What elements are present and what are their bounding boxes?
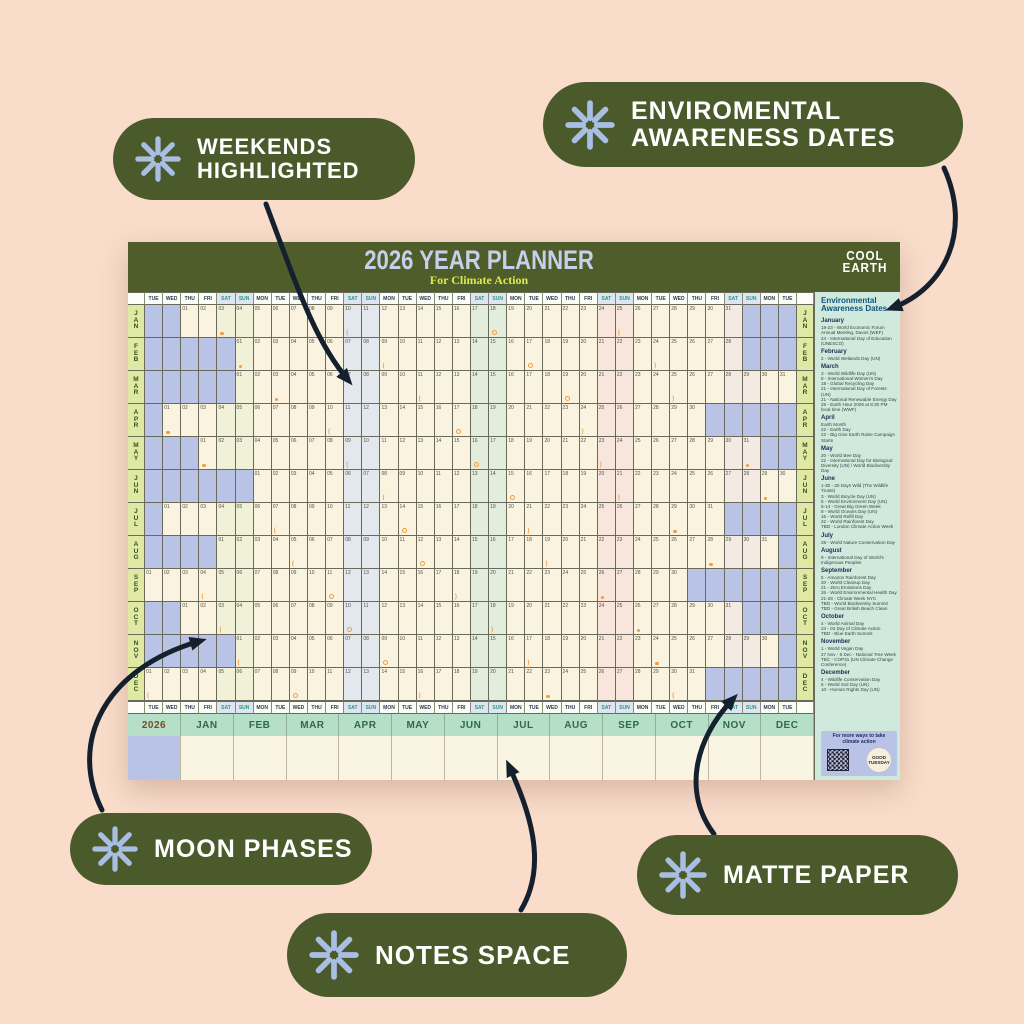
date-number: 21 [544, 603, 550, 609]
day-header: SUN [236, 701, 254, 714]
date-number: 03 [218, 306, 224, 312]
day-cell: 01( [236, 635, 254, 668]
day-cell: 19 [507, 305, 525, 338]
day-cell [725, 569, 743, 602]
day-cell: 08 [326, 437, 344, 470]
notes-cell [128, 736, 181, 780]
callout-moon-phases: MOON PHASES [70, 813, 372, 885]
sidebar-month-heading: March [821, 364, 897, 370]
day-cell: 05 [308, 371, 326, 404]
day-header: TUE [399, 292, 417, 305]
top-day-header-row: TUEWEDTHUFRISATSUNMONTUEWEDTHUFRISATSUNM… [128, 292, 814, 305]
date-number: 13 [454, 372, 460, 378]
day-cell [706, 668, 724, 701]
callout-text: MATTE PAPER [723, 862, 909, 889]
date-number: 04 [218, 405, 224, 411]
month-label-left: D E C [128, 668, 145, 701]
day-cell: 21 [507, 569, 525, 602]
moon-phase-full-icon [546, 695, 550, 699]
day-cell: 24 [598, 305, 616, 338]
header-corner [797, 292, 814, 305]
moon-phase-full-icon [220, 332, 224, 336]
day-header: SAT [471, 292, 489, 305]
day-cell: 24) [580, 404, 598, 437]
day-header: FRI [199, 701, 217, 714]
day-cell: 04 [290, 338, 308, 371]
sidebar-month-heading: July [821, 533, 897, 539]
day-cell [181, 437, 199, 470]
date-number: 21 [508, 669, 514, 675]
day-cell: 22 [525, 569, 543, 602]
day-cell: 02 [254, 371, 272, 404]
day-cell: 10( [344, 305, 362, 338]
day-cell: 22 [616, 338, 634, 371]
day-cell: 24 [580, 503, 598, 536]
date-number: 06 [327, 339, 333, 345]
day-cell: 02 [163, 668, 181, 701]
date-number: 25 [599, 405, 605, 411]
date-number: 07 [345, 339, 351, 345]
date-number: 25 [635, 438, 641, 444]
notes-cell [498, 736, 551, 780]
date-number: 12 [400, 438, 406, 444]
day-cell: 15 [471, 536, 489, 569]
day-cell [743, 305, 761, 338]
moon-phase-full-icon [637, 629, 641, 633]
date-number: 30 [689, 504, 695, 510]
date-number: 02 [164, 570, 170, 576]
day-cell: 07 [254, 668, 272, 701]
date-number: 24 [599, 603, 605, 609]
date-number: 04 [200, 570, 206, 576]
day-header: SAT [344, 292, 362, 305]
day-cell: 28 [634, 569, 652, 602]
sidebar-footer-text: For more ways to take climate action [824, 734, 894, 745]
day-cell: 25 [634, 437, 652, 470]
day-cell: 03( [217, 602, 235, 635]
day-cell: 31 [779, 371, 797, 404]
month-row-nov: N O V01(02030405060708091011121314151617… [128, 635, 814, 668]
date-number: 03 [237, 438, 243, 444]
day-cell: 25) [616, 305, 634, 338]
date-number: 18 [544, 636, 550, 642]
day-cell: 08 [290, 404, 308, 437]
date-number: 05 [309, 372, 315, 378]
day-cell: 08 [362, 371, 380, 404]
day-cell: 07 [290, 602, 308, 635]
day-cell: 30 [670, 569, 688, 602]
day-header: SUN [743, 292, 761, 305]
notes-cell [656, 736, 709, 780]
date-number: 28 [707, 537, 713, 543]
date-number: 07 [345, 372, 351, 378]
date-number: 17 [526, 636, 532, 642]
callout-text: MOON PHASES [154, 836, 353, 863]
day-cell: 14 [471, 635, 489, 668]
footer-month-label: OCT [656, 714, 709, 736]
date-number: 15 [418, 405, 424, 411]
asterisk-icon [659, 851, 707, 899]
day-header: THU [435, 701, 453, 714]
day-cell: 29 [743, 371, 761, 404]
date-number: 09 [327, 306, 333, 312]
date-number: 13 [454, 339, 460, 345]
date-number: 13 [381, 405, 387, 411]
day-cell: 31 [706, 503, 724, 536]
date-number: 27 [617, 570, 623, 576]
day-cell: 19 [489, 503, 507, 536]
day-cell: 16 [453, 305, 471, 338]
day-cell: 03 [181, 668, 199, 701]
day-header: FRI [706, 701, 724, 714]
day-cell: 28 [634, 668, 652, 701]
day-cell: 22 [562, 602, 580, 635]
day-cell: 12 [417, 536, 435, 569]
day-cell: 08 [362, 338, 380, 371]
day-header: SUN [743, 701, 761, 714]
date-number: 15 [472, 537, 478, 543]
date-number: 16 [418, 570, 424, 576]
day-cell: 16) [417, 668, 435, 701]
date-number: 11 [345, 504, 350, 510]
asterisk-icon [135, 136, 181, 182]
date-number: 01 [237, 339, 243, 345]
day-cell: 28 [670, 602, 688, 635]
date-number: 14 [418, 603, 424, 609]
day-cell [779, 437, 797, 470]
date-number: 03 [273, 339, 279, 345]
date-number: 04 [291, 636, 297, 642]
date-number: 20 [508, 405, 514, 411]
day-cell: 19) [543, 536, 561, 569]
date-number: 23 [635, 372, 641, 378]
day-cell: 02 [254, 635, 272, 668]
notes-cell [339, 736, 392, 780]
date-number: 20 [490, 669, 496, 675]
day-cell [163, 602, 181, 635]
date-number: 26 [635, 603, 641, 609]
date-number: 27 [707, 372, 713, 378]
day-cell: 20 [507, 404, 525, 437]
date-number: 10 [400, 339, 406, 345]
day-cell: 04 [217, 404, 235, 437]
month-label-left: O C T [128, 602, 145, 635]
day-cell: 18 [543, 635, 561, 668]
date-number: 25 [617, 603, 623, 609]
date-number: 15 [436, 603, 442, 609]
date-number: 26 [617, 504, 623, 510]
day-cell: 05 [217, 569, 235, 602]
date-number: 03 [291, 471, 297, 477]
month-label-right: J U N [797, 470, 814, 503]
day-cell: 20 [562, 536, 580, 569]
day-cell: 04( [199, 569, 217, 602]
date-number: 18 [472, 405, 478, 411]
date-number: 09 [381, 339, 387, 345]
date-number: 13 [472, 471, 478, 477]
day-header: WED [290, 292, 308, 305]
day-cell [725, 668, 743, 701]
day-cell: 21) [525, 503, 543, 536]
day-cell: 24 [562, 569, 580, 602]
date-number: 11 [327, 570, 332, 576]
date-number: 31 [726, 306, 732, 312]
day-cell: 31 [688, 668, 706, 701]
day-cell: 28 [652, 404, 670, 437]
day-cell: 14 [380, 668, 398, 701]
footer-month-label: MAY [392, 714, 445, 736]
moon-phase-new-icon [420, 561, 425, 566]
moon-phase-new-icon [383, 660, 388, 665]
asterisk-icon [309, 930, 359, 980]
day-cell: 30 [688, 503, 706, 536]
day-cell: 17 [453, 404, 471, 437]
day-cell [199, 470, 217, 503]
arrow-notes-space [509, 766, 535, 910]
day-cell: 17 [525, 338, 543, 371]
day-cell: 18 [543, 338, 561, 371]
sidebar-awareness-entry: 1-30 - 30 Days Wild (The Wildlife Trusts… [821, 483, 897, 493]
date-number: 06 [309, 537, 315, 543]
date-number: 05 [327, 471, 333, 477]
date-number: 11 [327, 669, 332, 675]
date-number: 20 [544, 438, 550, 444]
date-number: 03 [218, 603, 224, 609]
day-cell: 16 [525, 470, 543, 503]
day-cell: 14 [399, 503, 417, 536]
moon-phase-full-icon [764, 497, 768, 501]
day-header: SUN [489, 292, 507, 305]
day-header: SAT [217, 292, 235, 305]
date-number: 22 [544, 405, 550, 411]
day-cell: 03 [272, 338, 290, 371]
day-cell: 14 [417, 305, 435, 338]
day-cell: 12 [380, 602, 398, 635]
moon-phase-full-icon [673, 530, 677, 534]
date-number: 21 [508, 570, 514, 576]
sidebar-footer: For more ways to take climate action GOO… [821, 731, 897, 776]
date-number: 17 [454, 405, 460, 411]
month-label-right: A P R [797, 404, 814, 437]
day-header: SAT [725, 701, 743, 714]
moon-phase-fq-icon: ) [618, 330, 620, 336]
day-cell: 07( [272, 503, 290, 536]
date-number: 31 [780, 372, 786, 378]
date-number: 08 [363, 636, 369, 642]
date-number: 03 [273, 372, 279, 378]
date-number: 10 [327, 504, 333, 510]
moon-phase-new-icon [565, 396, 570, 401]
date-number: 20 [599, 471, 605, 477]
sidebar-awareness-entry: 9 - International Day of World's Indigen… [821, 555, 897, 565]
date-number: 02 [182, 405, 188, 411]
date-number: 06 [327, 636, 333, 642]
date-number: 30 [689, 405, 695, 411]
date-number: 28 [726, 372, 732, 378]
date-number: 01 [237, 372, 243, 378]
day-cell: 26 [670, 536, 688, 569]
date-number: 15 [490, 636, 496, 642]
date-number: 04 [255, 438, 261, 444]
day-header: WED [543, 292, 561, 305]
day-cell: 11 [362, 305, 380, 338]
date-number: 15 [400, 669, 406, 675]
day-cell [743, 404, 761, 437]
day-cell: 09 [362, 536, 380, 569]
date-number: 25 [671, 636, 677, 642]
date-number: 12 [436, 372, 442, 378]
date-number: 22 [544, 504, 550, 510]
date-number: 27 [617, 669, 623, 675]
date-number: 03 [255, 537, 261, 543]
day-cell [181, 470, 199, 503]
date-number: 01 [146, 669, 152, 675]
day-cell [145, 305, 163, 338]
date-number: 28 [726, 636, 732, 642]
moon-phase-fq-icon: ) [672, 396, 674, 402]
moon-phase-lq-icon: ( [219, 627, 221, 633]
date-number: 02 [237, 537, 243, 543]
date-number: 01 [237, 636, 243, 642]
day-cell: 27 [706, 371, 724, 404]
day-cell: 28 [725, 338, 743, 371]
date-number: 03 [182, 570, 188, 576]
date-number: 22 [526, 570, 532, 576]
moon-phase-lq-icon: ( [672, 693, 674, 699]
day-header: WED [290, 701, 308, 714]
day-cell: 10 [380, 536, 398, 569]
day-cell: 03 [272, 635, 290, 668]
day-cell: 29 [652, 668, 670, 701]
date-number: 02 [200, 603, 206, 609]
date-number: 10 [309, 570, 315, 576]
date-number: 25 [617, 306, 623, 312]
date-number: 04 [291, 372, 297, 378]
date-number: 15 [490, 372, 496, 378]
day-cell: 17 [525, 371, 543, 404]
day-header: TUE [145, 701, 163, 714]
date-number: 06 [237, 570, 243, 576]
moon-phase-fq-icon: ) [545, 561, 547, 567]
date-number: 29 [744, 636, 750, 642]
day-cell: 23) [598, 437, 616, 470]
day-cell: 04 [254, 437, 272, 470]
day-header: TUE [652, 701, 670, 714]
date-number: 17 [472, 603, 478, 609]
moon-phase-full-icon [709, 563, 713, 567]
date-number: 04 [218, 504, 224, 510]
day-cell: 11 [344, 404, 362, 437]
date-number: 11 [381, 438, 386, 444]
date-number: 19 [472, 669, 478, 675]
day-cell: 16 [507, 338, 525, 371]
day-header: TUE [272, 292, 290, 305]
day-header: WED [163, 292, 181, 305]
day-cell: 26 [634, 602, 652, 635]
day-cell: 09 [308, 404, 326, 437]
date-number: 13 [400, 603, 406, 609]
date-number: 29 [707, 438, 713, 444]
date-number: 23 [581, 603, 587, 609]
day-cell [761, 503, 779, 536]
moon-phase-fq-icon: ) [582, 429, 584, 435]
date-number: 27 [689, 537, 695, 543]
day-cell [743, 569, 761, 602]
day-cell: 16 [453, 602, 471, 635]
date-number: 22 [599, 537, 605, 543]
date-number: 29 [653, 570, 659, 576]
day-cell: 14 [453, 536, 471, 569]
moon-phase-lq-icon: ( [238, 660, 240, 666]
date-number: 19 [508, 306, 514, 312]
day-cell: 15 [489, 371, 507, 404]
day-cell: 07 [308, 437, 326, 470]
day-cell: 16 [507, 371, 525, 404]
date-number: 10 [418, 471, 424, 477]
day-cell [725, 404, 743, 437]
day-cell [743, 602, 761, 635]
date-number: 26 [689, 339, 695, 345]
qr-code [827, 749, 849, 771]
day-cell: 03 [272, 371, 290, 404]
date-number: 30 [762, 636, 768, 642]
date-number: 18 [544, 339, 550, 345]
date-number: 18 [526, 537, 532, 543]
month-label-left: A P R [128, 404, 145, 437]
day-cell: 09 [290, 668, 308, 701]
date-number: 01 [164, 504, 170, 510]
date-number: 19 [526, 438, 532, 444]
day-cell: 10 [326, 503, 344, 536]
date-number: 18 [472, 504, 478, 510]
day-cell [779, 305, 797, 338]
sidebar-awareness-entry: 10 - Human Rights Day (UN) [821, 687, 897, 692]
header-corner [128, 292, 145, 305]
day-cell: 09( [380, 338, 398, 371]
day-cell: 21 [580, 536, 598, 569]
footer-month-label: JUN [445, 714, 498, 736]
date-number: 09 [381, 372, 387, 378]
date-number: 31 [726, 603, 732, 609]
day-cell: 22 [543, 404, 561, 437]
moon-phase-fq-icon: ) [419, 693, 421, 699]
day-cell: 17 [435, 668, 453, 701]
day-cell [181, 371, 199, 404]
day-cell: 12 [362, 404, 380, 437]
day-cell: 07 [362, 470, 380, 503]
day-cell: 28 [706, 536, 724, 569]
sidebar-title: Environmental Awareness Dates [821, 297, 897, 313]
date-number: 06 [345, 471, 351, 477]
day-cell: 13 [453, 371, 471, 404]
date-number: 11 [418, 636, 423, 642]
day-cell: 25 [652, 536, 670, 569]
day-cell: 05 [236, 404, 254, 437]
sidebar-month-heading: May [821, 446, 897, 452]
date-number: 19 [581, 471, 587, 477]
poster-subtitle: For Climate Action [430, 274, 528, 287]
month-row-sep: S E P01020304(05060708091011121314151617… [128, 569, 814, 602]
day-header: WED [543, 701, 561, 714]
date-number: 06 [255, 504, 261, 510]
day-cell: 18 [507, 437, 525, 470]
day-cell: 11 [417, 338, 435, 371]
day-cell: 13 [435, 536, 453, 569]
day-cell: 20 [489, 569, 507, 602]
date-number: 28 [671, 306, 677, 312]
day-cell [761, 404, 779, 437]
day-cell: 01 [181, 602, 199, 635]
